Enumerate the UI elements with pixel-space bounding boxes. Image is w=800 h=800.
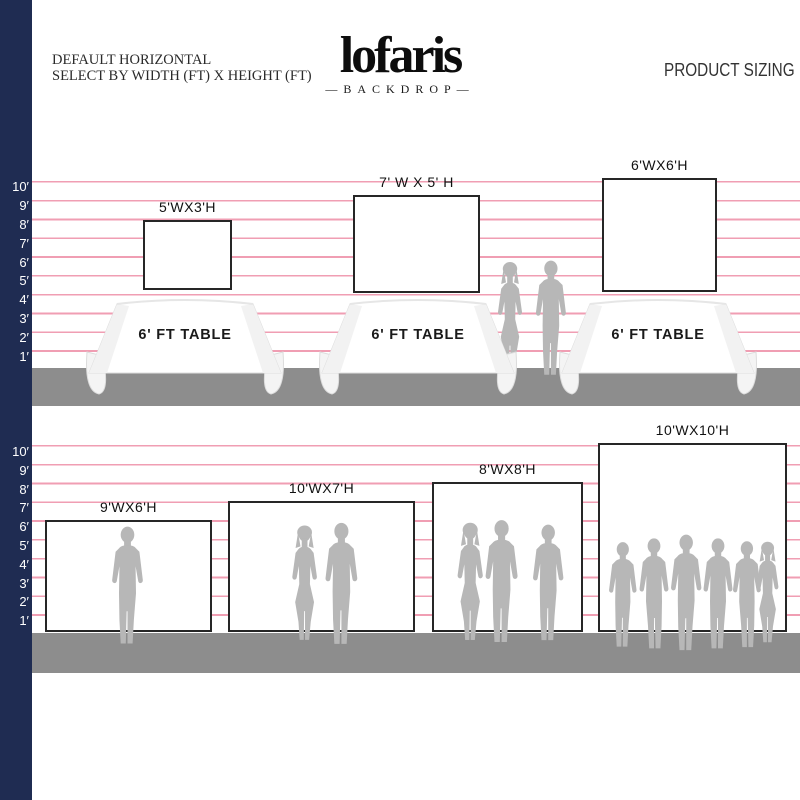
ruler-mark-bottom-5ft: 5′ [0, 538, 29, 554]
backdrop-7x5 [353, 195, 480, 293]
ruler-mark-top-6ft: 6′ [0, 255, 29, 271]
tagline-line2: SELECT BY WIDTH (FT) X HEIGHT (FT) [52, 69, 312, 85]
ruler-mark-top-3ft: 3′ [0, 311, 29, 327]
backdrop-label-7x5: 7' W X 5' H [333, 174, 500, 191]
single-man-silhouette [102, 522, 154, 646]
backdrop-label-9x6: 9'WX6'H [25, 499, 232, 516]
backdrop-label-10x10: 10'WX10'H [578, 422, 800, 439]
product-sizing-infographic: 10′ 9′ 8′ 7′ 6′ 5′ 4′ 3′ 2′ 1′ 10′ 9′ 8′… [0, 0, 800, 800]
group-silhouette [598, 530, 790, 655]
backdrop-label-6x6: 6'WX6'H [582, 157, 737, 174]
ruler-mark-top-8ft: 8′ [0, 217, 29, 233]
table-2: 6' FT TABLE [318, 294, 518, 400]
brand-name: lofaris [300, 30, 500, 82]
ruler-mark-bottom-6ft: 6′ [0, 519, 29, 535]
ruler-mark-bottom-4ft: 4′ [0, 557, 29, 573]
tagline: DEFAULT HORIZONTAL SELECT BY WIDTH (FT) … [52, 53, 312, 84]
ruler-mark-bottom-2ft: 2′ [0, 594, 29, 610]
ruler-mark-bottom-9ft: 9′ [0, 463, 29, 479]
ruler-mark-bottom-8ft: 8′ [0, 482, 29, 498]
table-label-1: 6' FT TABLE [85, 327, 285, 343]
ruler-bar [0, 0, 32, 800]
backdrop-6x6 [602, 178, 717, 292]
table-1: 6' FT TABLE [85, 294, 285, 400]
ruler-mark-top-5ft: 5′ [0, 273, 29, 289]
ruler-mark-top-2ft: 2′ [0, 330, 29, 346]
ruler-mark-top-1ft: 1′ [0, 349, 29, 365]
page-title: PRODUCT SIZING [664, 60, 795, 81]
brand-subtitle: —BACKDROP— [300, 82, 500, 97]
table-label-3: 6' FT TABLE [558, 327, 758, 343]
ruler-mark-top-7ft: 7′ [0, 236, 29, 252]
ruler-mark-bottom-10ft: 10′ [0, 444, 29, 460]
backdrop-5x3 [143, 220, 232, 290]
tagline-line1: DEFAULT HORIZONTAL [52, 53, 312, 69]
ruler-mark-bottom-1ft: 1′ [0, 613, 29, 629]
ruler-mark-top-9ft: 9′ [0, 198, 29, 214]
ruler-mark-top-4ft: 4′ [0, 292, 29, 308]
brand-logo: lofaris —BACKDROP— [300, 30, 500, 97]
ruler-mark-top-10ft: 10′ [0, 179, 29, 195]
table-label-2: 6' FT TABLE [318, 327, 518, 343]
backdrop-label-5x3: 5'WX3'H [123, 199, 252, 216]
couple-silhouette-bottom [280, 518, 370, 646]
trio-silhouette [443, 515, 575, 645]
backdrop-label-10x7: 10'WX7'H [208, 480, 435, 497]
table-3: 6' FT TABLE [558, 294, 758, 400]
ruler-mark-bottom-3ft: 3′ [0, 576, 29, 592]
backdrop-label-8x8: 8'WX8'H [412, 461, 603, 478]
